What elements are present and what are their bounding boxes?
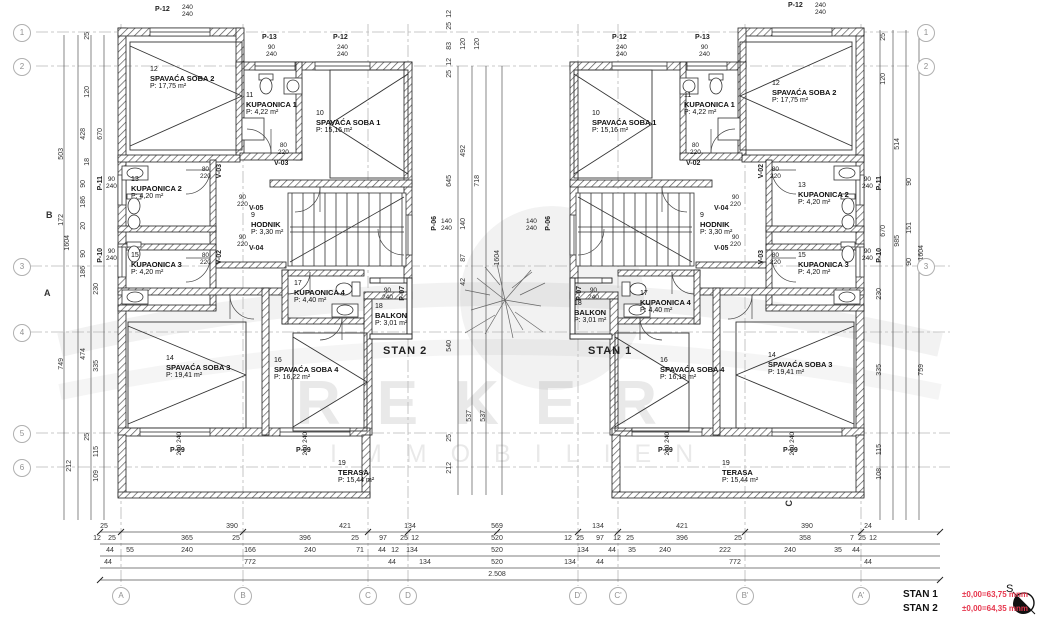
legend-stan2-level: ±0,00=64,35 mnm bbox=[962, 604, 1028, 613]
dim-label: 335 bbox=[93, 360, 100, 372]
dim-label: 645 bbox=[446, 175, 453, 187]
door-tag: V-04 bbox=[714, 205, 728, 212]
dim-label: 25 bbox=[880, 33, 887, 41]
dim-label: 25 bbox=[446, 70, 453, 78]
dim-label: 520 bbox=[491, 559, 503, 566]
dim-label: 12 bbox=[446, 10, 453, 18]
opening-tag: P-11 bbox=[97, 176, 104, 190]
dim-label: 569 bbox=[491, 523, 503, 530]
dim-label: 35 bbox=[628, 547, 636, 554]
dim-label: 44 bbox=[864, 559, 872, 566]
opening-size: 90 240 bbox=[699, 44, 710, 58]
opening-tag: P-06 bbox=[431, 216, 438, 231]
dim-label: 134 bbox=[564, 559, 576, 566]
dim-label: 134 bbox=[419, 559, 431, 566]
grid-bubble-col: B bbox=[234, 587, 252, 605]
dim-label: 120 bbox=[474, 38, 481, 50]
dim-label: 396 bbox=[299, 535, 311, 542]
room-label: 14SPAVAĆA SOBA 3P: 19,41 m² bbox=[166, 355, 230, 381]
room-label: 18BALKONP: 3,01 m² bbox=[574, 300, 606, 326]
staircase-left bbox=[288, 193, 406, 266]
room-label: 10SPAVAĆA SOBA 1P: 15,16 m² bbox=[592, 110, 656, 136]
dim-label: 140 bbox=[460, 218, 467, 230]
opening-size: 240 240 bbox=[337, 44, 348, 58]
dim-label: 12 bbox=[869, 535, 877, 542]
dim-label: 20 bbox=[80, 222, 87, 230]
dim-label: 134 bbox=[406, 547, 418, 554]
dim-label: 335 bbox=[876, 364, 883, 376]
grid-bubble-col: C bbox=[359, 587, 377, 605]
room-label: 13KUPAONICA 2P: 4,20 m² bbox=[798, 182, 849, 208]
dim-label: 25 bbox=[100, 523, 108, 530]
dim-label: 365 bbox=[181, 535, 193, 542]
dim-label: 25 bbox=[734, 535, 742, 542]
dim-label: 44 bbox=[106, 547, 114, 554]
dim-label: 25 bbox=[626, 535, 634, 542]
dim-label: 240 bbox=[659, 547, 671, 554]
grid-bubble-row: 5 bbox=[13, 425, 31, 443]
opening-size: 90 240 bbox=[266, 44, 277, 58]
dim-label: 186 bbox=[80, 266, 87, 278]
room-label: 17KUPAONICA 4P: 4,40 m² bbox=[640, 290, 691, 316]
legend-stan1-level: ±0,00=63,75 mnm bbox=[962, 590, 1028, 599]
opening-tag: P-13 bbox=[262, 34, 277, 41]
dim-label: 230 bbox=[93, 283, 100, 295]
room-label: 17KUPAONICA 4P: 4,40 m² bbox=[294, 280, 345, 306]
opening-tag: P-12 bbox=[788, 2, 803, 9]
dim-label: 390 bbox=[801, 523, 813, 530]
dim-label: 749 bbox=[58, 358, 65, 370]
dim-label: 35 bbox=[834, 547, 842, 554]
opening-tag: P-13 bbox=[695, 34, 710, 41]
dim-label: 12 bbox=[391, 547, 399, 554]
dim-label: 12 bbox=[93, 535, 101, 542]
opening-size: 240 240 bbox=[815, 2, 826, 16]
dim-label: 115 bbox=[876, 444, 883, 455]
dim-label: 514 bbox=[894, 138, 901, 150]
legend-stan2-label: STAN 2 bbox=[903, 603, 938, 614]
section-marker-c: C bbox=[784, 500, 794, 507]
dim-label: 55 bbox=[126, 547, 134, 554]
dim-label: 134 bbox=[404, 523, 416, 530]
dim-label: 44 bbox=[378, 547, 386, 554]
dim-label: 12 bbox=[411, 535, 419, 542]
dim-label: 90 bbox=[906, 178, 913, 186]
opening-tag: P-10 bbox=[97, 248, 104, 263]
unit-label-stan1: STAN 1 bbox=[588, 345, 632, 357]
dim-label: 25 bbox=[446, 434, 453, 442]
dim-label: 358 bbox=[799, 535, 811, 542]
door-tag: V-04 bbox=[249, 245, 263, 252]
opening-size: 140 240 bbox=[441, 218, 452, 232]
dim-label: 12 bbox=[613, 535, 621, 542]
room-label: 12SPAVAĆA SOBA 2P: 17,75 m² bbox=[150, 66, 214, 92]
dim-label: 25 bbox=[84, 433, 91, 441]
dim-label: 503 bbox=[58, 148, 65, 160]
grid-bubble-row: 2 bbox=[917, 58, 935, 76]
section-marker-b: B bbox=[46, 210, 53, 220]
room-label: 19TERASAP: 15,44 m² bbox=[338, 460, 374, 486]
dim-label: 83 bbox=[446, 42, 453, 50]
dim-label: 25 bbox=[446, 22, 453, 30]
grid-bubble-row: 2 bbox=[13, 58, 31, 76]
dim-label: 115 bbox=[93, 446, 100, 457]
dim-label: 166 bbox=[244, 547, 256, 554]
dim-label: 537 bbox=[480, 410, 487, 422]
dim-label: 1604 bbox=[64, 235, 71, 251]
section-marker-a: A bbox=[44, 288, 51, 298]
room-label: 11KUPAONICA 1P: 4,22 m² bbox=[246, 92, 297, 118]
dim-label: 240 bbox=[181, 547, 193, 554]
opening-size: 240 240 bbox=[176, 432, 183, 456]
grid-bubble-col: D bbox=[399, 587, 417, 605]
door-size: 80 220 bbox=[278, 142, 289, 156]
door-size: 90 220 bbox=[237, 194, 248, 208]
dim-label: 520 bbox=[491, 547, 503, 554]
dim-label: 492 bbox=[460, 145, 467, 157]
opening-tag: P-07 bbox=[399, 286, 406, 301]
door-tag: V-02 bbox=[686, 160, 700, 167]
dim-label: 1604 bbox=[494, 250, 501, 266]
staircase-right bbox=[576, 193, 694, 266]
door-size: 80 220 bbox=[770, 166, 781, 180]
opening-tag: P-12 bbox=[612, 34, 627, 41]
room-label: 16SPAVAĆA SOBA 4P: 16,22 m² bbox=[274, 357, 338, 383]
door-tag: V-05 bbox=[249, 205, 263, 212]
dim-label: 120 bbox=[84, 86, 91, 98]
dim-label: 25 bbox=[84, 32, 91, 40]
grid-bubble-row: 4 bbox=[13, 324, 31, 342]
dim-label: 421 bbox=[339, 523, 351, 530]
room-label: 12SPAVAĆA SOBA 2P: 17,75 m² bbox=[772, 80, 836, 106]
room-label: 11KUPAONICA 1P: 4,22 m² bbox=[684, 92, 735, 118]
dim-label: 44 bbox=[388, 559, 396, 566]
dim-label: 151 bbox=[906, 222, 913, 234]
dim-label: 42 bbox=[460, 278, 467, 286]
door-tag: V-03 bbox=[274, 160, 288, 167]
grid-bubble-row: 3 bbox=[917, 258, 935, 276]
dim-label: 759 bbox=[918, 364, 925, 376]
opening-tag: P-11 bbox=[876, 176, 883, 190]
dim-label: 25 bbox=[576, 535, 584, 542]
opening-size: 90 240 bbox=[862, 176, 873, 190]
dim-label: 772 bbox=[244, 559, 256, 566]
room-label: 14SPAVAĆA SOBA 3P: 19,41 m² bbox=[768, 352, 832, 378]
door-tag: V-05 bbox=[714, 245, 728, 252]
dim-label: 212 bbox=[446, 462, 453, 474]
dim-label: 108 bbox=[876, 468, 883, 480]
door-size: 80 220 bbox=[690, 142, 701, 156]
dim-label: 474 bbox=[80, 348, 87, 360]
dim-label: 7 bbox=[850, 535, 854, 542]
room-label: 9HODNIKP: 3,30 m² bbox=[700, 212, 732, 238]
dim-label: 120 bbox=[460, 38, 467, 50]
room-label: 18BALKONP: 3,01 m² bbox=[375, 303, 407, 329]
door-size: 90 220 bbox=[237, 234, 248, 248]
dim-label: 44 bbox=[596, 559, 604, 566]
dim-label: 90 bbox=[80, 250, 87, 258]
unit-label-stan2: STAN 2 bbox=[383, 345, 427, 357]
dim-label: 97 bbox=[596, 535, 604, 542]
dim-label: 670 bbox=[880, 225, 887, 237]
door-size: 80 220 bbox=[200, 252, 211, 266]
dim-label: 44 bbox=[608, 547, 616, 554]
dim-label: 120 bbox=[880, 73, 887, 85]
room-label: 15KUPAONICA 3P: 4,20 m² bbox=[798, 252, 849, 278]
room-label: 13KUPAONICA 2P: 4,20 m² bbox=[131, 176, 182, 202]
dim-label: 428 bbox=[80, 128, 87, 140]
dim-label: 90 bbox=[906, 258, 913, 266]
opening-size: 240 240 bbox=[789, 432, 796, 456]
dim-label: 12 bbox=[564, 535, 572, 542]
plan-linework bbox=[0, 0, 1055, 622]
dim-label: 390 bbox=[226, 523, 238, 530]
door-size: 90 220 bbox=[730, 194, 741, 208]
dim-label: 25 bbox=[232, 535, 240, 542]
opening-size: 90 240 bbox=[862, 248, 873, 262]
dim-label: 172 bbox=[58, 214, 65, 226]
dim-label: 2.508 bbox=[488, 571, 506, 578]
opening-size: 240 240 bbox=[664, 432, 671, 456]
dim-label: 240 bbox=[784, 547, 796, 554]
dim-label: 540 bbox=[446, 340, 453, 352]
dim-label: 520 bbox=[491, 535, 503, 542]
grid-bubble-row: 1 bbox=[917, 24, 935, 42]
opening-size: 140 240 bbox=[526, 218, 537, 232]
dim-label: 44 bbox=[852, 547, 860, 554]
opening-tag: P-06 bbox=[545, 216, 552, 231]
opening-size: 240 240 bbox=[616, 44, 627, 58]
opening-tag: P-07 bbox=[576, 286, 583, 301]
dim-label: 87 bbox=[460, 254, 467, 262]
opening-tag: P-10 bbox=[876, 248, 883, 263]
grid-bubble-col: D' bbox=[569, 587, 587, 605]
dim-label: 44 bbox=[104, 559, 112, 566]
dim-label: 670 bbox=[97, 128, 104, 140]
opening-size: 90 240 bbox=[106, 176, 117, 190]
dim-label: 230 bbox=[876, 288, 883, 300]
room-label: 15KUPAONICA 3P: 4,20 m² bbox=[131, 252, 182, 278]
dim-label: 240 bbox=[304, 547, 316, 554]
dim-label: 24 bbox=[864, 523, 872, 530]
room-label: 10SPAVAĆA SOBA 1P: 15,16 m² bbox=[316, 110, 380, 136]
grid-bubble-col: A bbox=[112, 587, 130, 605]
dim-label: 109 bbox=[93, 470, 100, 482]
dim-label: 25 bbox=[108, 535, 116, 542]
door-size: 80 220 bbox=[200, 166, 211, 180]
dim-label: 222 bbox=[719, 547, 731, 554]
floor-plan-sheet: REKER IMMOBILIEN bbox=[0, 0, 1055, 622]
grid-bubble-col: A' bbox=[852, 587, 870, 605]
dim-label: 134 bbox=[592, 523, 604, 530]
room-label: 9HODNIKP: 3,30 m² bbox=[251, 212, 283, 238]
dim-label: 25 bbox=[400, 535, 408, 542]
dim-label: 772 bbox=[729, 559, 741, 566]
opening-size: 90 240 bbox=[588, 287, 599, 301]
opening-size: 240 240 bbox=[302, 432, 309, 456]
room-label: 19TERASAP: 15,44 m² bbox=[722, 460, 758, 486]
dim-label: 25 bbox=[858, 535, 866, 542]
dim-label: 134 bbox=[577, 547, 589, 554]
door-tag: V-03 bbox=[758, 250, 765, 264]
dim-label: 421 bbox=[676, 523, 688, 530]
grid-bubble-row: 3 bbox=[13, 258, 31, 276]
dim-label: 985 bbox=[894, 235, 901, 247]
room-label: 16SPAVAĆA SOBA 4P: 16,18 m² bbox=[660, 357, 724, 383]
dim-label: 71 bbox=[356, 547, 364, 554]
opening-tag: P-12 bbox=[155, 6, 170, 13]
dim-label: 718 bbox=[474, 175, 481, 187]
dim-label: 396 bbox=[676, 535, 688, 542]
opening-size: 240 240 bbox=[182, 4, 193, 18]
legend-stan1-label: STAN 1 bbox=[903, 589, 938, 600]
grid-bubble-row: 6 bbox=[13, 459, 31, 477]
opening-size: 90 240 bbox=[382, 287, 393, 301]
grid-bubble-col: C' bbox=[609, 587, 627, 605]
opening-size: 90 240 bbox=[106, 248, 117, 262]
dim-label: 212 bbox=[66, 460, 73, 472]
door-size: 80 220 bbox=[770, 252, 781, 266]
opening-tag: P-12 bbox=[333, 34, 348, 41]
grid-bubble-row: 1 bbox=[13, 24, 31, 42]
dim-label: 25 bbox=[351, 535, 359, 542]
north-label: S bbox=[1006, 583, 1013, 595]
door-tag: V-02 bbox=[758, 164, 765, 178]
dim-label: 537 bbox=[466, 410, 473, 422]
dim-label: 90 bbox=[80, 180, 87, 188]
dim-label: 12 bbox=[446, 58, 453, 66]
grid-bubble-col: B' bbox=[736, 587, 754, 605]
dim-label: 18 bbox=[84, 158, 91, 166]
door-tag: V-02 bbox=[216, 250, 223, 264]
dim-label: 97 bbox=[379, 535, 387, 542]
door-tag: V-03 bbox=[216, 164, 223, 178]
dim-label: 186 bbox=[80, 196, 87, 208]
door-size: 90 220 bbox=[730, 234, 741, 248]
